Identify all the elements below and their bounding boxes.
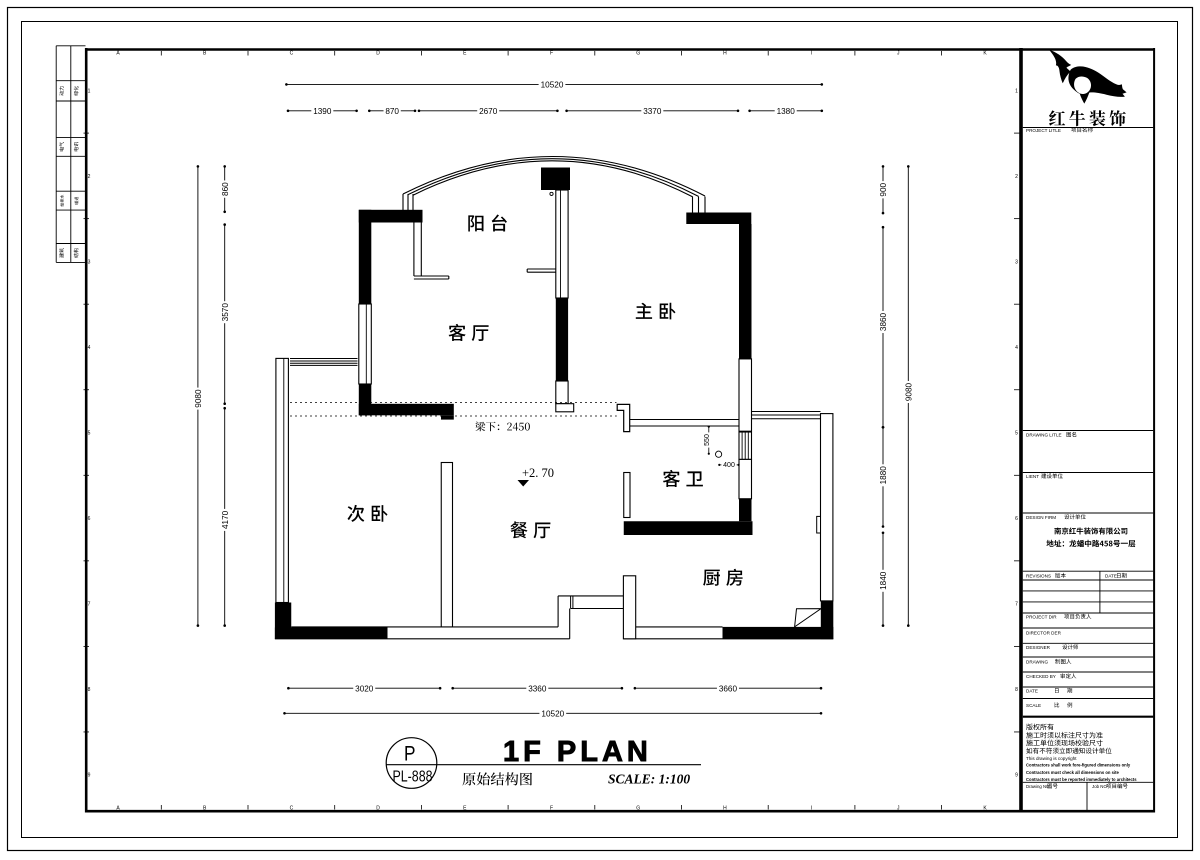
svg-text:4170: 4170 [221,510,230,529]
svg-text:D: D [376,51,380,57]
svg-text:3020: 3020 [355,684,374,693]
svg-text:PL-888: PL-888 [393,768,433,785]
svg-text:7: 7 [1015,602,1018,608]
svg-text:7: 7 [88,602,91,608]
svg-text:LIENT: LIENT [1026,474,1039,479]
svg-text:Contractors must be reported i: Contractors must be reported immediately… [1026,777,1137,782]
svg-text:8: 8 [88,687,91,693]
svg-text:This drawing is copyright: This drawing is copyright [1026,756,1077,761]
svg-text:10520: 10520 [541,709,564,718]
svg-text:5: 5 [1015,431,1018,437]
svg-text:3370: 3370 [643,107,662,116]
svg-text:Drawing NO: Drawing NO [1026,784,1050,789]
svg-text:P: P [404,742,416,765]
svg-text:2670: 2670 [479,107,498,116]
svg-text:H: H [723,51,727,57]
svg-text:SCALE: 1:100: SCALE: 1:100 [608,772,690,787]
svg-text:CHECKED BY: CHECKED BY [1026,674,1056,679]
svg-text:1380: 1380 [777,107,796,116]
svg-text:DATE: DATE [1105,574,1117,579]
svg-text:9080: 9080 [194,389,203,408]
svg-text:9: 9 [88,773,91,779]
svg-text:DATE: DATE [1026,689,1038,694]
svg-text:1390: 1390 [313,107,332,116]
svg-text:6: 6 [88,516,91,522]
svg-text:5: 5 [88,431,91,437]
svg-text:870: 870 [385,107,399,116]
svg-text:I: I [811,806,812,812]
svg-text:Contractors shall work fore-fi: Contractors shall work fore-figured dime… [1026,763,1131,768]
svg-text:3: 3 [1015,259,1018,265]
svg-text:10520: 10520 [541,81,564,90]
svg-text:F: F [550,806,553,812]
svg-text:G: G [636,806,640,812]
svg-text:DIRECTOR DER: DIRECTOR DER [1026,631,1062,636]
svg-text:400: 400 [723,462,735,469]
svg-text:I: I [811,51,812,57]
svg-text:9080: 9080 [904,382,913,401]
svg-text:Contractors must check all dim: Contractors must check all dimensions on… [1026,770,1120,775]
svg-text:2: 2 [88,174,91,180]
svg-text:SCALE: SCALE [1026,703,1041,708]
svg-text:4: 4 [88,345,91,351]
svg-text:C: C [290,51,294,57]
svg-text:550: 550 [704,434,711,446]
svg-text:9: 9 [1015,773,1018,779]
svg-text:3360: 3360 [528,684,547,693]
svg-text:1: 1 [88,88,91,94]
svg-text:+2. 70: +2. 70 [522,466,554,480]
svg-text:DESIGN FIRM: DESIGN FIRM [1026,515,1056,520]
svg-text:3570: 3570 [221,303,230,322]
svg-text:2: 2 [1015,174,1018,180]
svg-text:4: 4 [1015,345,1018,351]
svg-text:D: D [376,806,380,812]
svg-text:DRAWING LITLE: DRAWING LITLE [1026,433,1062,438]
svg-text:1840: 1840 [879,571,888,590]
svg-text:8: 8 [1015,687,1018,693]
svg-text:REVISIONS: REVISIONS [1026,574,1051,579]
svg-text:860: 860 [221,182,230,196]
svg-text:3860: 3860 [879,312,888,331]
svg-text:G: G [636,51,640,57]
svg-text:3660: 3660 [719,684,738,693]
svg-text:PROJECT DIR: PROJECT DIR [1026,615,1057,620]
svg-text:DESIGNER: DESIGNER [1026,645,1051,650]
svg-text:6: 6 [1015,516,1018,522]
svg-text:1: 1 [1015,88,1018,94]
svg-text:F: F [550,51,553,57]
svg-text:DRAWING: DRAWING [1026,660,1048,665]
svg-text:PROJECT LITLE: PROJECT LITLE [1026,128,1061,133]
svg-text:900: 900 [879,182,888,196]
svg-text:Job NO: Job NO [1092,784,1107,789]
svg-text:1880: 1880 [879,466,888,485]
svg-text:1F PLAN: 1F PLAN [503,736,652,768]
svg-text:C: C [290,806,294,812]
svg-text:H: H [723,806,727,812]
svg-text:3: 3 [88,259,91,265]
